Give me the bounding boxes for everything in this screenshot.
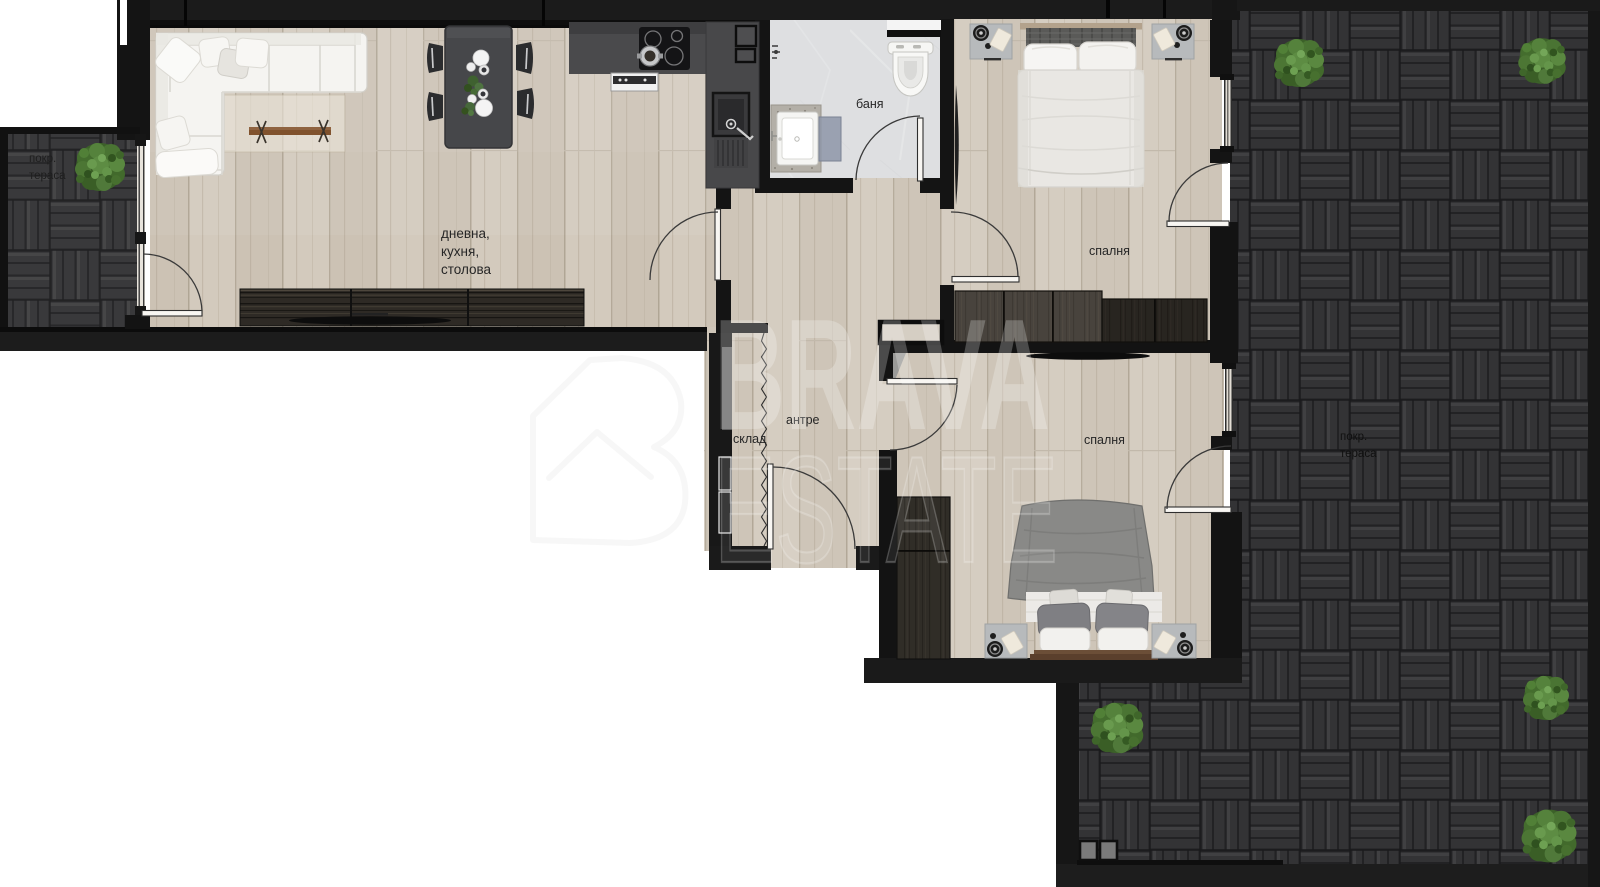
svg-text:тераса: тераса bbox=[29, 170, 66, 182]
svg-text:покр.: покр. bbox=[1340, 431, 1367, 443]
svg-text:ESTATE: ESTATE bbox=[714, 425, 1058, 595]
svg-text:баня: баня bbox=[856, 97, 884, 111]
svg-text:кухня,: кухня, bbox=[441, 244, 479, 259]
svg-text:дневна,: дневна, bbox=[441, 226, 490, 241]
svg-text:столова: столова bbox=[441, 262, 492, 277]
svg-text:покр.: покр. bbox=[29, 153, 56, 165]
svg-text:спалня: спалня bbox=[1084, 433, 1125, 447]
svg-text:спалня: спалня bbox=[1089, 244, 1130, 258]
svg-text:тераса: тераса bbox=[1340, 448, 1377, 460]
